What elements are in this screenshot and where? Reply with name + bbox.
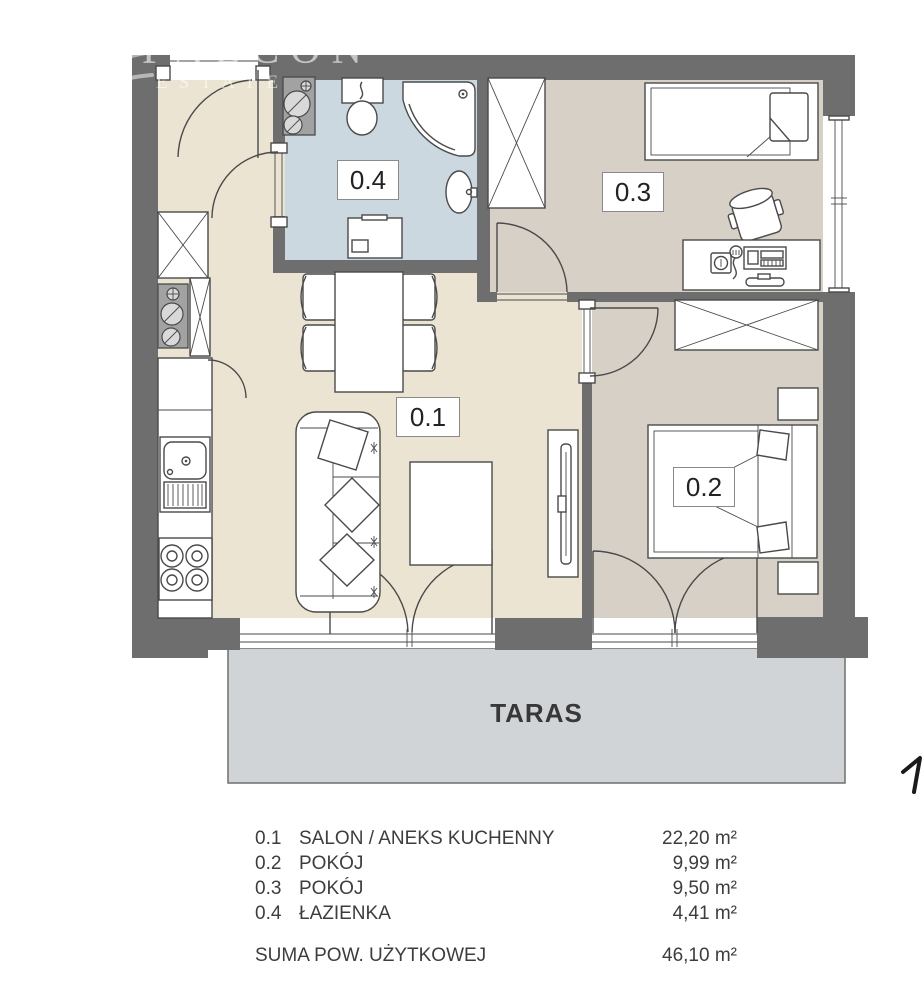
legend-row: 0.1 SALON / ANEKS KUCHENNY 22,20 m²	[255, 828, 737, 853]
legend-row: 0.3 POKÓJ 9,50 m²	[255, 878, 737, 903]
pc-console-icon	[744, 247, 786, 269]
room-label-0-1: 0.1	[396, 397, 460, 437]
legend-total-area: 46,10 m²	[662, 945, 737, 967]
room-label-0-3: 0.3	[602, 172, 664, 212]
legend-room-number: 0.3	[255, 878, 299, 900]
legend-total-row: SUMA POW. UŻYTKOWEJ 46,10 m²	[255, 945, 737, 970]
legend-row: 0.2 POKÓJ 9,99 m²	[255, 853, 737, 878]
legend-room-number: 0.4	[255, 903, 299, 925]
tall-cabinet-icon	[190, 278, 210, 356]
fridge-icon	[158, 212, 208, 278]
legend-room-name: ŁAZIENKA	[299, 903, 673, 925]
legend-room-number: 0.1	[255, 828, 299, 850]
floor-plan-page: FALCON ESTATE 0.1 0.2 0.3 0.4 TARAS 0.1 …	[0, 0, 922, 1008]
legend-room-area: 9,50 m²	[673, 878, 737, 900]
legend-room-name: SALON / ANEKS KUCHENNY	[299, 828, 662, 850]
bed-pillow	[757, 430, 789, 460]
coffee-table-icon	[410, 462, 492, 565]
entrance-opening	[156, 55, 270, 80]
room-label-0-2: 0.2	[673, 467, 735, 507]
wardrobe-room-02-icon	[675, 300, 818, 350]
window-room-03	[823, 116, 855, 292]
washing-machine-icon	[348, 215, 402, 258]
stove-icon	[159, 538, 212, 600]
legend-total-label: SUMA POW. UŻYTKOWEJ	[255, 945, 662, 967]
wardrobe-room-03-icon	[488, 78, 545, 208]
room-label-0-4: 0.4	[337, 160, 399, 200]
electrical-panel-icon	[158, 284, 188, 348]
washer-dryer-column-icon	[283, 77, 315, 135]
nightstand-icon	[778, 562, 818, 594]
handwritten-mark	[903, 758, 920, 792]
legend-room-name: POKÓJ	[299, 878, 673, 900]
nightstand-icon	[778, 388, 818, 420]
legend-room-name: POKÓJ	[299, 853, 673, 875]
sofa-icon	[296, 412, 380, 612]
legend-room-area: 22,20 m²	[662, 828, 737, 850]
legend-row: 0.4 ŁAZIENKA 4,41 m²	[255, 903, 737, 928]
bed-pillow	[757, 522, 789, 553]
desk-icon	[683, 240, 820, 290]
terrace-label: TARAS	[228, 698, 845, 729]
legend-room-area: 9,99 m²	[673, 853, 737, 875]
tv-icon	[548, 430, 578, 577]
legend-room-number: 0.2	[255, 853, 299, 875]
kitchen-sink-icon	[160, 437, 210, 512]
legend-room-area: 4,41 m²	[673, 903, 737, 925]
single-bed-icon	[645, 83, 818, 160]
legend: 0.1 SALON / ANEKS KUCHENNY 22,20 m² 0.2 …	[255, 828, 737, 970]
